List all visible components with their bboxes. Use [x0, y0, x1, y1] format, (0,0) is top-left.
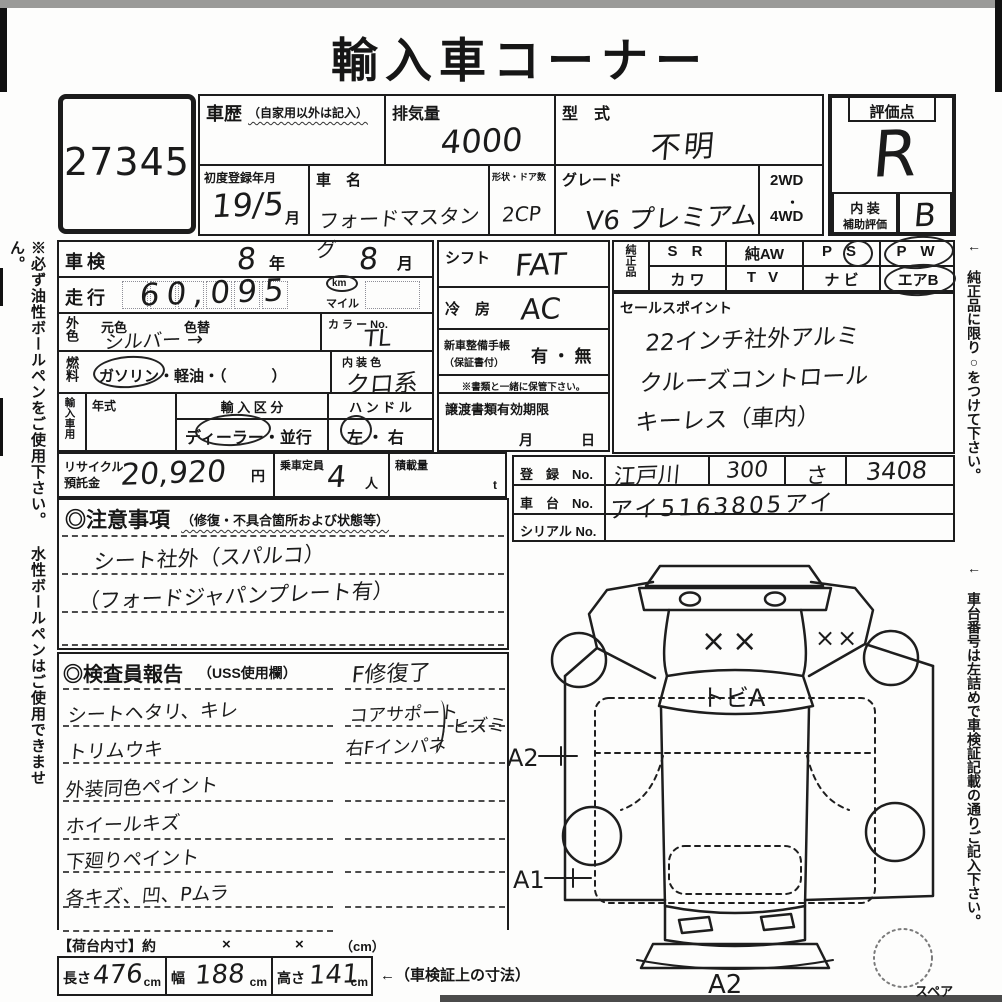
width-value: 188: [194, 959, 246, 991]
displacement-label: 排気量: [392, 100, 440, 124]
right-margin-note-chassis: ← 車台番号は左詰めで車検証記載の通りご記入下さい。: [964, 560, 984, 990]
genuine-airbag: エアB: [881, 269, 955, 290]
serial-divider: [604, 513, 606, 542]
inspector-rule: [345, 871, 505, 873]
transfer-day-label: 日: [581, 430, 595, 450]
history-cell: 車歴 （自家用以外は記入）: [198, 94, 386, 166]
service-booklet-cell: 新車整備手帳 （保証書付） 有 ・ 無: [437, 328, 610, 376]
registration-class: 300: [725, 457, 769, 483]
interior-label: 内 装: [834, 198, 896, 217]
scan-artifact: [0, 268, 3, 306]
car-diagram: ×× ×× トビA A2 A1 A2 スペア: [503, 548, 961, 1000]
import-class-cell: 輸 入 区 分 ディーラー・並行: [175, 392, 329, 452]
length-label: 長さ: [63, 968, 91, 988]
body-doors-cell: 形状・ドア数 2CP: [488, 164, 556, 236]
load-cell: 積載量 t: [388, 452, 507, 498]
first-registration-cell: 初度登録年月 19/5 月: [198, 164, 310, 236]
service-booklet-sub: （保証書付）: [444, 354, 504, 369]
inspector-rule: [63, 688, 333, 690]
width-cell: 幅 188 cm: [165, 956, 273, 996]
scan-artifact: [0, 8, 7, 92]
reg-divider: [845, 455, 847, 486]
height-label: 高さ: [277, 968, 305, 988]
mileage-unit-mile: マイル: [326, 295, 359, 311]
diagram-label-a1: A1: [513, 866, 545, 894]
cargo-x1: ×: [222, 936, 231, 953]
shaken-month-unit: 月: [397, 250, 413, 274]
length-cell: 長さ 476 cm: [57, 956, 167, 996]
inspector-rule: [345, 838, 505, 840]
cargo-label: 【荷台内寸】約: [58, 936, 156, 956]
registration-number: 3408: [865, 456, 929, 486]
scan-artifact: [0, 0, 1002, 8]
shift-label: シフト: [445, 247, 490, 268]
chassis-row: 車 台 No. アイ5163805アイ: [512, 484, 955, 515]
height-cell: 高さ 141 cm: [271, 956, 373, 996]
genuine-parts-label: 純正品: [624, 244, 635, 292]
shift-value: FAT: [513, 247, 567, 284]
reg-divider: [708, 455, 710, 486]
recycle-value: 20,920: [119, 454, 227, 493]
ac-value: AC: [519, 291, 562, 326]
attention-rule: [62, 573, 504, 575]
fuel-label: 燃料: [65, 356, 78, 394]
attention-header-sub: （修復・不具合箇所および状態等）: [181, 510, 389, 529]
capacity-value: 4: [325, 460, 347, 496]
height-unit: cm: [351, 975, 368, 989]
inspector-header: ◎検査員報告: [63, 658, 183, 687]
shaken-year-unit: 年: [269, 250, 285, 274]
mileage-label: 走行: [65, 284, 109, 310]
width-unit: cm: [250, 975, 267, 989]
inspector-item: トリムウキ: [67, 734, 165, 764]
genuine-pw: P W: [881, 243, 955, 260]
import-class-label: 輸 入 区 分: [177, 397, 327, 420]
model-code-label: 型 式: [562, 100, 610, 124]
inspector-rule: [345, 688, 505, 690]
length-value: 476: [92, 959, 144, 991]
grade-label: グレード: [562, 169, 622, 190]
registration-row: 登 録 No. 江戸川 300 さ 3408: [512, 455, 955, 486]
model-year-cell: 年式: [85, 392, 177, 452]
interior-sub-label: 補助評価: [834, 216, 896, 232]
genuine-aw: 純AW: [727, 243, 802, 264]
capacity-unit: 人: [365, 473, 378, 492]
diagram-label-a2-left: A2: [507, 744, 539, 772]
model-year-label: 年式: [92, 397, 116, 414]
first-registration-label: 初度登録年月: [204, 169, 276, 186]
history-label: 車歴: [206, 100, 242, 126]
shaken-year-value: 8: [235, 242, 257, 278]
width-label: 幅: [171, 968, 185, 988]
fuel-options: ガソリン・軽油・（ ）: [99, 365, 287, 386]
recycle-deposit-cell: リサイクル 預託金 20,920 円: [57, 452, 275, 498]
displacement-cell: 排気量 4000: [384, 94, 556, 166]
service-booklet-label: 新車整備手帳: [444, 337, 510, 353]
drive-2wd-label: 2WD: [770, 172, 803, 189]
interior-score-value: B: [912, 196, 937, 235]
fender-damage-mark: ××: [815, 624, 859, 652]
color-no-value: TL: [363, 326, 392, 353]
car-name-cell: 車 名 フォードマスタング: [308, 164, 490, 236]
transfer-docs-cell: 譲渡書類有効期限 月 日: [437, 392, 610, 452]
first-registration-unit: 月: [285, 207, 300, 228]
import-class-value: ディーラー・並行: [185, 424, 312, 448]
attention-rule: [62, 644, 504, 646]
inspector-top-note: F修復了: [350, 655, 432, 690]
ac-cell: 冷 房 AC: [437, 286, 610, 330]
sales-points-box: セールスポイント 22インチ社外アルミ クルーズコントロール キーレス（車内）: [612, 292, 955, 454]
booklet-note: ※書類と一緒に保管下さい。: [439, 379, 608, 393]
spare-tire-label: スペア: [915, 984, 953, 999]
model-code-value: 不明: [649, 121, 719, 167]
capacity-cell: 乗車定員 4 人: [273, 452, 390, 498]
body-doors-label: 形状・ドア数: [492, 170, 546, 183]
attention-header: ◎注意事項: [65, 504, 170, 534]
history-note: （自家用以外は記入）: [248, 104, 368, 121]
shift-cell: シフト FAT: [437, 240, 610, 288]
genuine-tv: T V: [727, 269, 802, 286]
color-no-cell: カ ラ ー No. TL: [320, 312, 434, 352]
grade-value: V6 プレミアム: [584, 195, 759, 238]
ac-label: 冷 房: [445, 298, 490, 319]
attention-line: （フォードジャパンプレート有）: [77, 575, 395, 616]
serial-row: シリアル No.: [512, 513, 955, 542]
inspector-rule: [63, 930, 333, 932]
inspector-item: 下廻りペイント: [65, 843, 201, 875]
attention-rule: [62, 611, 504, 613]
recycle-label-line1: リサイクル: [64, 458, 123, 475]
length-unit: cm: [144, 975, 161, 989]
hood-damage-mark: ××: [701, 624, 763, 659]
inspector-item: 各キズ、凹、Pムラ: [65, 878, 230, 911]
inspector-brace-note: ヒズミ: [451, 711, 507, 739]
windshield-note: トビA: [701, 684, 766, 712]
attention-line: シート社外（スパルコ）: [92, 538, 326, 576]
interior-score-label-cell: 内 装 補助評価: [832, 192, 898, 234]
sales-point-line: クルーズコントロール: [638, 356, 870, 398]
chassis-divider: [604, 484, 606, 515]
left-margin-note: ※必ず油性ボールペンをご使用下さい。 水性ボールペンはご使用できません。: [6, 240, 48, 795]
exterior-color-label: 外色: [65, 316, 78, 352]
sales-points-label: セールスポイント: [620, 298, 732, 318]
reg-divider: [784, 455, 786, 486]
mileage-unit-km: km: [332, 278, 346, 289]
chassis-label: 車 台 No.: [520, 493, 593, 512]
drive-type-cell: 2WD ・ 4WD: [758, 164, 824, 236]
dims-note: ←（車検証上の寸法）: [380, 964, 530, 985]
auction-sheet: 輸入車コーナー ※必ず油性ボールペンをご使用下さい。 水性ボールペンはご使用でき…: [0, 0, 1002, 1002]
booklet-note-cell: ※書類と一緒に保管下さい。: [437, 374, 610, 394]
displacement-value: 4000: [439, 121, 524, 162]
genuine-ps: P S: [804, 243, 879, 260]
load-label: 積載量: [395, 457, 428, 473]
serial-label: シリアル No.: [520, 521, 596, 540]
scan-artifact: [0, 398, 3, 456]
sales-point-line: 22インチ社外アルミ: [644, 316, 861, 357]
inspector-rule: [345, 906, 505, 908]
transfer-docs-label: 譲渡書類有効期限: [445, 399, 549, 418]
interior-color-cell: 内 装 色 クロ系: [330, 350, 434, 394]
body-doors-value: 2CP: [501, 201, 542, 226]
reg-divider: [604, 455, 606, 486]
grade-cell: グレード V6 プレミアム: [554, 164, 760, 236]
interior-score-value-cell: B: [898, 192, 952, 234]
inspector-item: ホイールキズ: [65, 808, 182, 839]
cargo-x2: ×: [295, 936, 304, 953]
handle-cell: ハ ン ド ル 左 ・ 右: [327, 392, 434, 452]
handle-label: ハ ン ド ル: [329, 397, 432, 420]
drive-4wd-label: 4WD: [770, 208, 803, 225]
page-title: 輸入車コーナー: [300, 22, 740, 91]
cargo-unit: （cm）: [340, 936, 385, 955]
import-use-label: 輸入車用: [64, 397, 75, 451]
attention-rule: [62, 535, 504, 537]
first-registration-value: 19/5: [210, 185, 285, 225]
genuine-navi: ナ ビ: [804, 269, 879, 290]
inspector-rule: [345, 762, 505, 764]
inspector-item: 外装同色ペイント: [65, 770, 220, 802]
mileage-digit-box: [365, 281, 420, 309]
registration-label: 登 録 No.: [520, 464, 593, 483]
inspector-header-sub: （USS使用欄）: [198, 663, 297, 683]
handle-value: 左 ・ 右: [347, 424, 404, 448]
diagram-label-a2-bottom: A2: [708, 970, 742, 1000]
genuine-sr: S R: [650, 243, 725, 260]
genuine-leather: カ ワ: [650, 269, 725, 290]
inspector-rule: [63, 838, 333, 840]
score-value: R: [857, 117, 934, 193]
car-name-label: 車 名: [316, 169, 361, 190]
shaken-row: 車検 8 年 8 月: [57, 240, 434, 278]
load-unit: t: [493, 478, 497, 492]
shaken-month-value: 8: [357, 242, 379, 278]
sales-point-line: キーレス（車内）: [634, 397, 822, 437]
mileage-value: 60,095: [138, 272, 292, 313]
recycle-unit: 円: [251, 466, 265, 486]
service-booklet-value: 有 ・ 無: [531, 342, 591, 367]
scan-artifact: [995, 0, 1002, 92]
auction-number: 27345: [62, 140, 192, 184]
model-code-cell: 型 式 不明: [554, 94, 824, 166]
transfer-month-label: 月: [519, 430, 533, 450]
inspector-rule: [345, 800, 505, 802]
right-margin-note-genuine: ← 純正品に限り○をつけて下さい。: [964, 238, 984, 568]
shaken-label: 車検: [65, 248, 109, 274]
recycle-label-line2: 預託金: [64, 474, 100, 491]
capacity-label: 乗車定員: [280, 457, 324, 473]
